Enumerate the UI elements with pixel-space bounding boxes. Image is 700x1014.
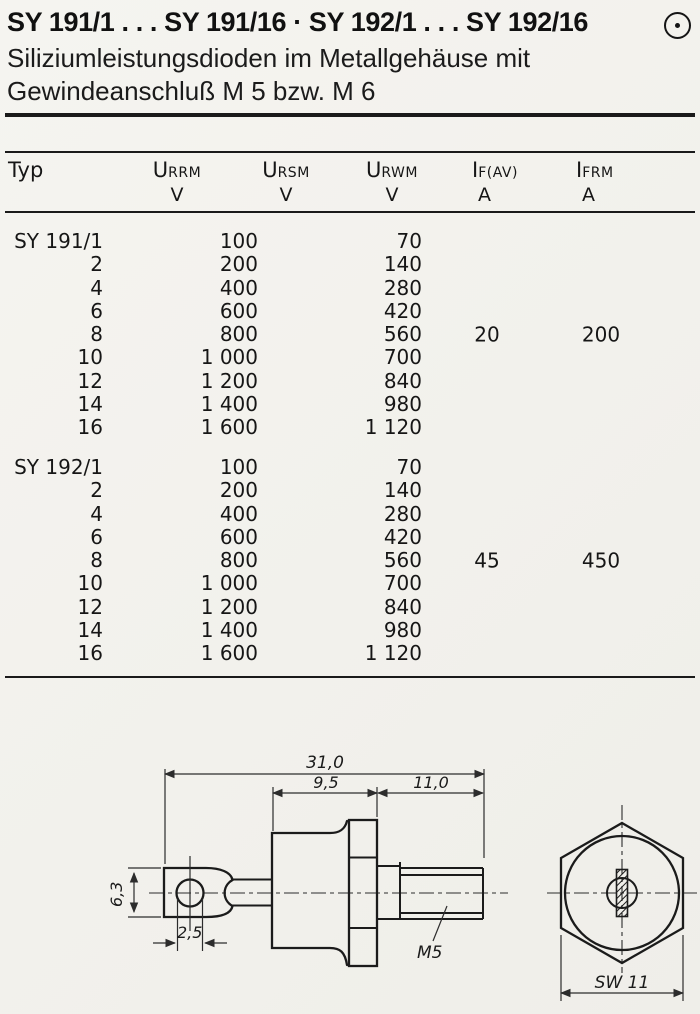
table-row: 6600420: [0, 526, 700, 549]
table-row: 101 000700: [0, 346, 700, 369]
type-cell: 12: [6, 370, 103, 393]
urrm-cell: 1 400: [118, 393, 258, 416]
dim-stud-label: 11,0: [413, 773, 449, 792]
urwm-cell: 70: [276, 456, 422, 479]
col-header-ifrm: IFRM A: [576, 159, 660, 206]
ifav-value: 20: [452, 323, 522, 346]
divider-header-bottom: [5, 211, 695, 213]
thread-callout: M5: [417, 906, 447, 963]
table-row: 121 200840: [0, 596, 700, 619]
type-cell: 4: [6, 277, 103, 300]
type-cell: SY 191/1: [6, 230, 103, 253]
ifrm-value: 450: [562, 549, 640, 572]
type-cell: 8: [6, 323, 103, 346]
urrm-cell: 1 200: [118, 596, 258, 619]
table-row: 141 400980: [0, 393, 700, 416]
type-cell: 8: [6, 549, 103, 572]
urwm-cell: 420: [276, 526, 422, 549]
package-drawing: 31,0 9,5 11,0 6,3: [0, 740, 700, 1014]
urwm-cell: 700: [276, 346, 422, 369]
screw-slot: [617, 870, 628, 917]
urrm-cell: 200: [118, 479, 258, 502]
wrench-size-label: SW 11: [595, 973, 650, 993]
dimension-body: 9,5: [273, 773, 377, 831]
subtitle-line-2: Gewindeanschluß M 5 bzw. M 6: [7, 75, 530, 108]
table-row: 161 6001 120: [0, 416, 700, 439]
urwm-cell: 700: [276, 572, 422, 595]
divider-table-bottom: [5, 676, 695, 678]
urwm-cell: 280: [276, 277, 422, 300]
urwm-cell: 560: [276, 549, 422, 572]
urwm-cell: 280: [276, 503, 422, 526]
dimension-stud: 11,0: [378, 773, 483, 793]
type-cell: 10: [6, 346, 103, 369]
urrm-cell: 800: [118, 549, 258, 572]
urrm-cell: 1 200: [118, 370, 258, 393]
unit-label: V: [244, 184, 328, 206]
urwm-cell: 140: [276, 253, 422, 276]
page-title: SY 191/1 . . . SY 191/16 · SY 192/1 . . …: [7, 6, 627, 38]
table-group-sy192: SY 192/110070 2200140 4400280 6600420 88…: [0, 456, 700, 666]
urrm-cell: 1 400: [118, 619, 258, 642]
diode-body: [272, 821, 347, 965]
urwm-cell: 70: [276, 230, 422, 253]
urrm-cell: 400: [118, 503, 258, 526]
type-cell: 2: [6, 479, 103, 502]
table-row: 4400280: [0, 503, 700, 526]
col-header-ursm: URSM V: [244, 159, 328, 206]
urrm-cell: 1 000: [118, 572, 258, 595]
dim-body-label: 9,5: [313, 773, 338, 792]
unit-label: V: [135, 184, 219, 206]
urrm-cell: 600: [118, 526, 258, 549]
stud-neck: [377, 862, 400, 919]
ifrm-value: 200: [562, 323, 640, 346]
circle-dot-icon: [664, 12, 691, 39]
subtitle-line-1: Siliziumleistungsdioden im Metallgehäuse…: [7, 42, 530, 75]
type-cell: 2: [6, 253, 103, 276]
type-cell: 10: [6, 572, 103, 595]
diode-side-view: 31,0 9,5 11,0 6,3: [107, 753, 508, 966]
urwm-cell: 840: [276, 370, 422, 393]
thread-label: M5: [417, 943, 442, 963]
divider-thick: [5, 113, 695, 117]
dimension-overall: 31,0: [165, 753, 484, 864]
urwm-cell: 140: [276, 479, 422, 502]
urrm-cell: 1 600: [118, 416, 258, 439]
type-cell: 4: [6, 503, 103, 526]
divider-table-top: [5, 151, 695, 153]
col-header-typ: Typ: [8, 159, 78, 181]
urrm-cell: 600: [118, 300, 258, 323]
urwm-cell: 980: [276, 393, 422, 416]
urwm-cell: 840: [276, 596, 422, 619]
type-cell: 14: [6, 393, 103, 416]
urrm-cell: 100: [118, 456, 258, 479]
table-row: 6600420: [0, 300, 700, 323]
urrm-cell: 800: [118, 323, 258, 346]
datasheet-page: SY 191/1 . . . SY 191/16 · SY 192/1 . . …: [0, 0, 700, 1014]
type-cell: 6: [6, 526, 103, 549]
urwm-cell: 1 120: [276, 642, 422, 665]
table-row: 101 000700: [0, 572, 700, 595]
urrm-cell: 1 600: [118, 642, 258, 665]
urrm-cell: 200: [118, 253, 258, 276]
unit-label: V: [350, 184, 434, 206]
col-header-ifav: IF(AV) A: [472, 159, 556, 206]
dim-hole-label: 2,5: [177, 923, 202, 942]
unit-label: A: [472, 184, 556, 206]
type-cell: 12: [6, 596, 103, 619]
type-cell: 16: [6, 642, 103, 665]
unit-label: A: [576, 184, 660, 206]
urrm-cell: 1 000: [118, 346, 258, 369]
type-cell: 16: [6, 416, 103, 439]
table-row: 4400280: [0, 277, 700, 300]
table-row: SY 192/110070: [0, 456, 700, 479]
urrm-cell: 100: [118, 230, 258, 253]
col-header-urrm: URRM V: [135, 159, 219, 206]
urwm-cell: 420: [276, 300, 422, 323]
table-row: 161 6001 120: [0, 642, 700, 665]
type-cell: 6: [6, 300, 103, 323]
table-row: 121 200840: [0, 370, 700, 393]
page-subtitle: Siliziumleistungsdioden im Metallgehäuse…: [7, 42, 530, 108]
urwm-cell: 1 120: [276, 416, 422, 439]
diode-end-view: SW 11: [547, 805, 698, 1001]
urwm-cell: 980: [276, 619, 422, 642]
dim-overall-label: 31,0: [306, 753, 344, 773]
table-row: 2200140: [0, 479, 700, 502]
table-row: 141 400980: [0, 619, 700, 642]
col-header-urwm: URWM V: [350, 159, 434, 206]
urrm-cell: 400: [118, 277, 258, 300]
ifav-value: 45: [452, 549, 522, 572]
table-row: SY 191/110070: [0, 230, 700, 253]
urwm-cell: 560: [276, 323, 422, 346]
table-row: 2200140: [0, 253, 700, 276]
table-group-sy191: SY 191/110070 2200140 4400280 6600420 88…: [0, 230, 700, 440]
type-cell: SY 192/1: [6, 456, 103, 479]
dim-lug-height-label: 6,3: [107, 882, 126, 907]
type-cell: 14: [6, 619, 103, 642]
